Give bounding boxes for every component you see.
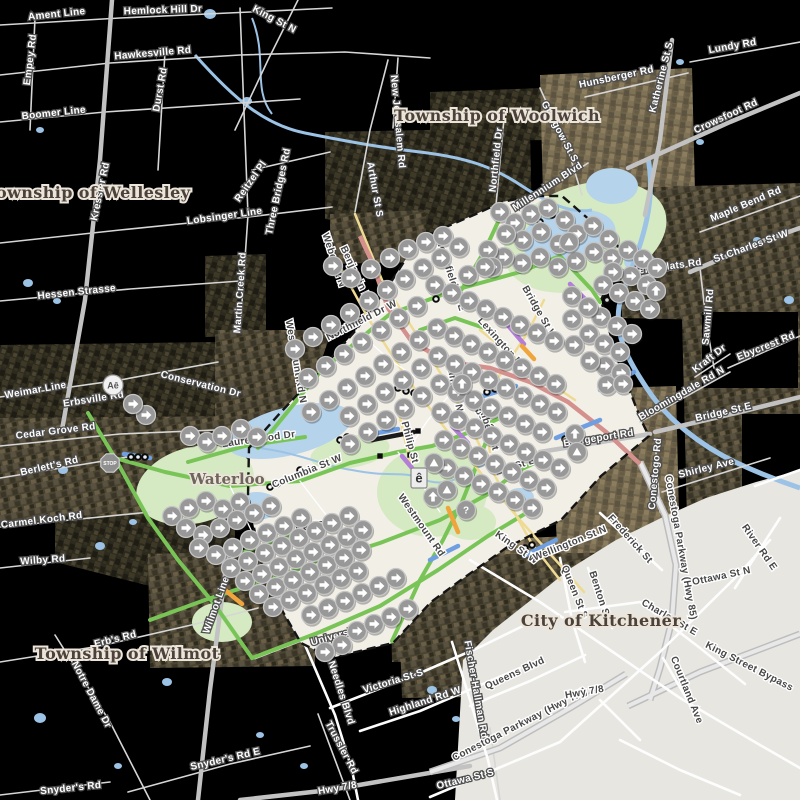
pond — [95, 542, 105, 550]
svg-text:Aê: Aê — [107, 380, 119, 390]
construction-point-icon[interactable] — [433, 296, 439, 302]
municipality-label: Township of Wellesley — [0, 183, 191, 202]
stop-sign-marker[interactable]: STOP — [101, 454, 119, 472]
map-viewport[interactable]: Ament LineHemlock Hill DrKing St NHawkes… — [0, 0, 800, 800]
municipality-label: City of Kitchener — [521, 611, 681, 630]
pond — [696, 139, 704, 145]
pond — [256, 732, 264, 738]
lake — [586, 168, 638, 204]
pond — [129, 519, 137, 525]
municipality-label: Township of Wilmot — [35, 644, 220, 663]
question-icon: ? — [463, 506, 469, 517]
round-sign-marker[interactable]: Aê — [103, 375, 123, 395]
construction-point-icon[interactable] — [142, 454, 148, 460]
pond — [114, 763, 122, 769]
pond — [676, 59, 684, 65]
pond — [23, 279, 33, 287]
municipality-label: Waterloo — [188, 470, 264, 488]
construction-point-icon[interactable] — [529, 542, 535, 548]
pond — [452, 716, 460, 722]
pond — [36, 127, 44, 133]
pond — [784, 296, 794, 304]
construction-map-canvas[interactable]: Ament LineHemlock Hill DrKing St NHawkes… — [0, 0, 800, 800]
construction-square-icon[interactable] — [415, 428, 420, 433]
construction-square-icon[interactable] — [377, 453, 382, 458]
municipality-label: Township of Woolwich — [394, 106, 600, 125]
construction-point-icon[interactable] — [135, 454, 141, 460]
construction-point-icon[interactable] — [604, 297, 610, 303]
svg-text:STOP: STOP — [103, 461, 117, 467]
pond — [300, 763, 308, 769]
square-sign-marker[interactable]: ê — [411, 468, 427, 488]
construction-point-icon[interactable] — [128, 454, 134, 460]
svg-text:ê: ê — [415, 471, 422, 486]
pond — [34, 713, 46, 723]
pond — [162, 678, 172, 686]
